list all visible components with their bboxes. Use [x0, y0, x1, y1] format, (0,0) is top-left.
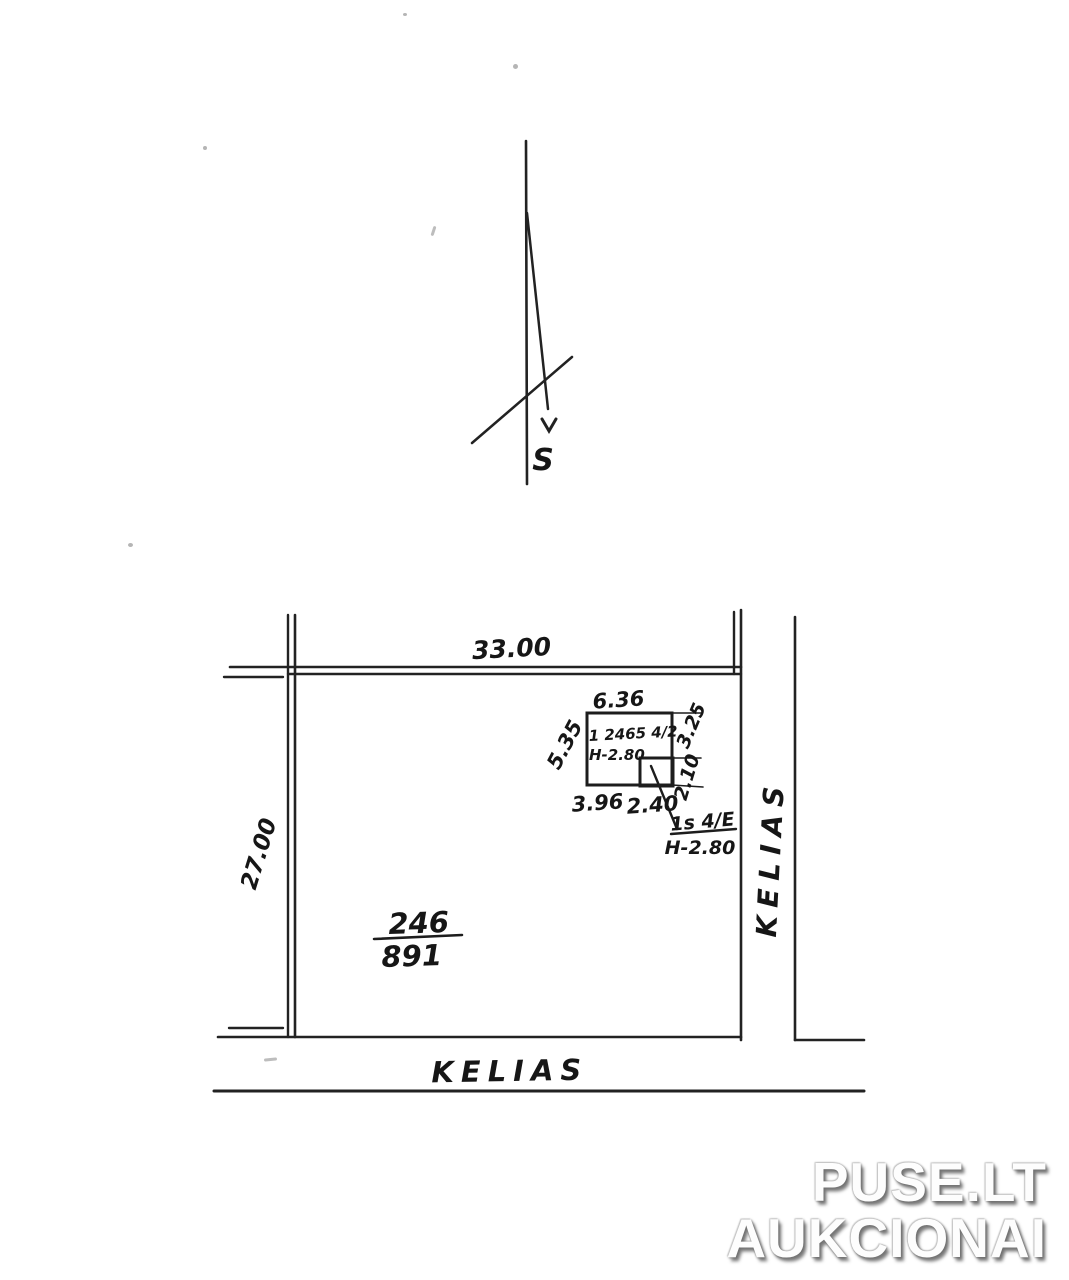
annex-height-label: H-2.80 [665, 837, 736, 859]
compass-cross-line [472, 357, 572, 443]
scan-speck [128, 543, 133, 547]
parcel-left-dimension: 27.00 [236, 815, 282, 892]
south-arrowhead-icon [542, 419, 556, 431]
scan-speck [403, 13, 407, 16]
road-bottom-label: KELIAS [431, 1053, 588, 1090]
watermark: PUSE.LT AUKCIONAI [726, 1154, 1047, 1266]
building-bottom-left-dimension: 3.96 [571, 789, 624, 817]
annex-label: 1s 4/E [669, 808, 735, 836]
north-arrow [472, 141, 572, 484]
building-left-dimension: 5.35 [542, 716, 588, 773]
scan-speck [513, 64, 518, 69]
scan-speck [203, 146, 207, 150]
building-height-label: H-2.80 [589, 746, 645, 764]
building-inventory-label: 1 2465 4/2 [588, 722, 678, 745]
building-top-dimension: 6.36 [592, 686, 645, 714]
parcel-boundary [224, 610, 741, 1040]
site-plan-drawing: S [0, 0, 1069, 1280]
road-right-label: KELIAS [750, 778, 791, 938]
parcel-top-dimension: 33.00 [471, 632, 551, 665]
compass-meridian-line [526, 141, 527, 484]
watermark-site-name: PUSE.LT [726, 1154, 1047, 1210]
road-right [795, 617, 864, 1040]
scanned-site-plan: S [0, 0, 1069, 1280]
parcel-area: 891 [381, 938, 443, 974]
building-right-top-dimension: 3.25 [672, 700, 711, 752]
watermark-subtitle: AUKCIONAI [726, 1210, 1047, 1266]
compass-south-label: S [532, 443, 554, 478]
parcel-number-fraction: 246 891 [374, 905, 462, 974]
